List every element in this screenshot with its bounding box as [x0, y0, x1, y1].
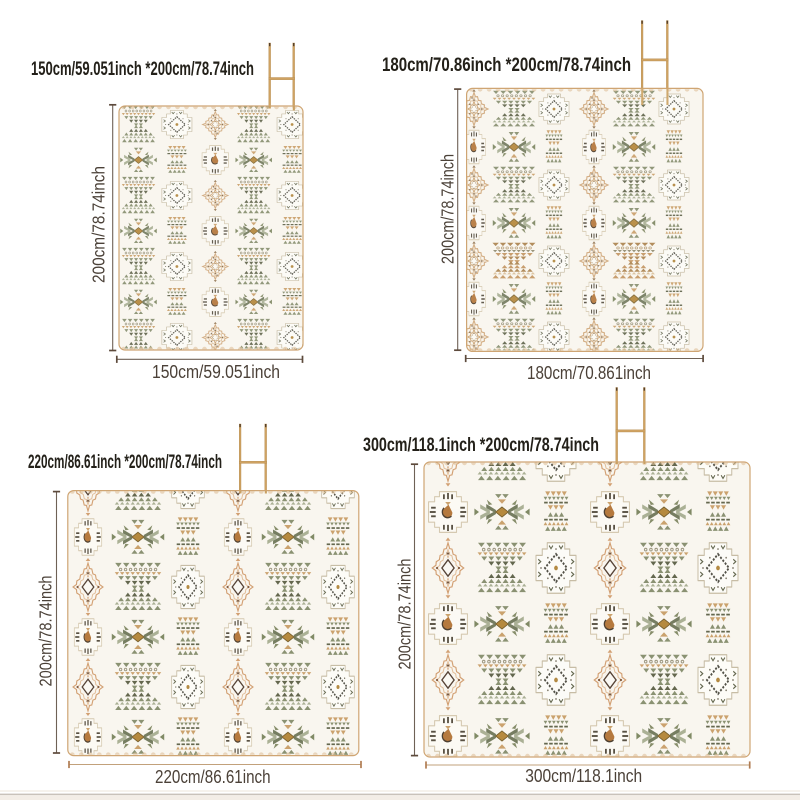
svg-text:220cm/86.61inch: 220cm/86.61inch — [155, 767, 271, 787]
svg-text:200cm/78.74inch: 200cm/78.74inch — [395, 559, 415, 670]
svg-text:300cm/118.1inch *200cm/78.74in: 300cm/118.1inch *200cm/78.74inch — [363, 434, 599, 456]
svg-text:300cm/118.1inch: 300cm/118.1inch — [525, 766, 642, 786]
svg-text:150cm/59.051inch: 150cm/59.051inch — [152, 362, 280, 382]
svg-text:200cm/78.74inch: 200cm/78.74inch — [438, 154, 458, 264]
svg-text:200cm/78.74inch: 200cm/78.74inch — [89, 166, 109, 283]
svg-text:200cm/78.74inch: 200cm/78.74inch — [36, 576, 56, 687]
svg-text:220cm/86.61inch *200cm/78.74in: 220cm/86.61inch *200cm/78.74inch — [28, 451, 222, 473]
svg-text:180cm/70.861inch: 180cm/70.861inch — [527, 363, 651, 383]
svg-text:180cm/70.86inch *200cm/78.74in: 180cm/70.86inch *200cm/78.74inch — [382, 54, 631, 76]
svg-text:150cm/59.051inch *200cm/78.74i: 150cm/59.051inch *200cm/78.74inch — [31, 58, 254, 80]
